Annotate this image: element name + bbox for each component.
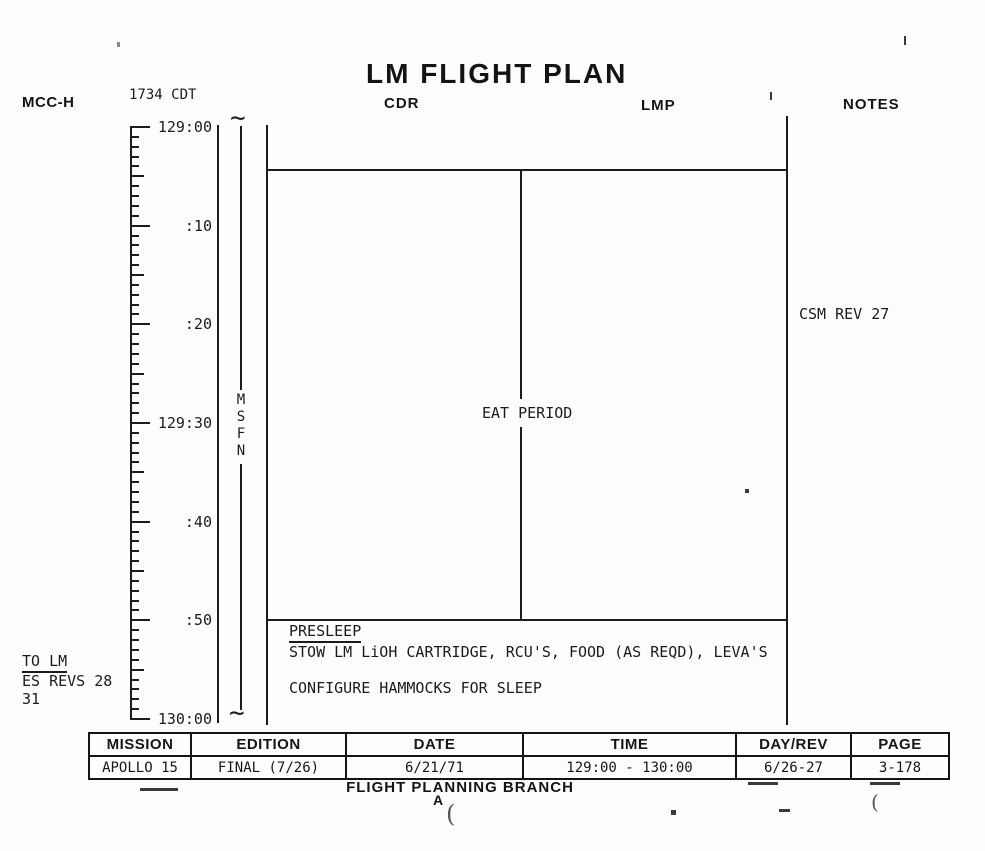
presleep-item-stow: STOW LM LiOH CARTRIDGE, RCU'S, FOOD (AS …: [289, 643, 768, 661]
ruler-tick: [130, 363, 139, 365]
column-header-notes: NOTES: [843, 96, 900, 113]
cdr-lmp-divider-upper: [520, 171, 522, 399]
table-header-mission: MISSION: [90, 734, 190, 757]
ruler-tick: [130, 294, 139, 296]
table-value-edition: FINAL (7/26): [192, 757, 345, 778]
ruler-tick: [130, 659, 139, 661]
ruler-tick: [130, 353, 139, 355]
table-col-time: TIME 129:00 - 130:00: [524, 734, 737, 778]
scan-artifact-tick: [904, 36, 906, 45]
ruler-tick: [130, 175, 144, 177]
ruler-tick-label: :50: [138, 611, 212, 629]
column-header-cdr: CDR: [384, 95, 420, 112]
ruler-tick: [130, 254, 139, 256]
ruler-tick-label: :10: [138, 217, 212, 235]
presleep-heading: PRESLEEP: [289, 622, 361, 643]
msfn-break-symbol-top: ~: [230, 103, 246, 133]
msfn-line-upper: [240, 126, 242, 390]
ruler-tick: [130, 195, 139, 197]
ruler-tick: [130, 669, 144, 671]
ruler-tick: [130, 244, 139, 246]
eat-period-top-rule: [266, 169, 788, 171]
scan-artifact-paren: (: [446, 800, 455, 828]
scan-artifact-dot: [745, 489, 749, 493]
ruler-tick: [130, 471, 144, 473]
margin-note-to-lm: TO LM: [22, 652, 67, 673]
scan-artifact-tick: [770, 92, 772, 100]
ruler-tick-label: 129:00: [138, 118, 212, 136]
ruler-tick: [130, 560, 139, 562]
ruler-tick: [130, 264, 139, 266]
ruler-tick-label: :20: [138, 315, 212, 333]
ruler-tick: [130, 383, 139, 385]
scan-artifact-dash: [870, 782, 900, 785]
ruler-tick: [130, 550, 139, 552]
eat-period-label: EAT PERIOD: [482, 404, 572, 422]
msfn-break-symbol-bottom: ~: [229, 698, 245, 728]
msfn-label: MSFN: [231, 392, 251, 460]
ruler-tick: [130, 452, 139, 454]
ruler-tick: [130, 333, 139, 335]
scan-artifact-dot: [117, 42, 120, 47]
page-title: LM FLIGHT PLAN: [366, 58, 627, 90]
table-header-date: DATE: [347, 734, 522, 757]
ruler-tick: [130, 304, 139, 306]
ruler-tick: [130, 185, 139, 187]
ruler-tick: [130, 698, 139, 700]
msfn-letter: N: [231, 443, 251, 460]
ruler-tick: [130, 156, 139, 158]
ruler-tick: [130, 373, 144, 375]
ruler-tick-label: 130:00: [138, 710, 212, 728]
timeline-right-border-line: [217, 125, 219, 723]
ruler-tick: [130, 274, 144, 276]
ruler-tick: [130, 461, 139, 463]
cdr-lmp-divider-lower: [520, 427, 522, 620]
table-header-time: TIME: [524, 734, 735, 757]
table-col-edition: EDITION FINAL (7/26): [192, 734, 347, 778]
msfn-letter: S: [231, 409, 251, 426]
table-col-mission: MISSION APOLLO 15: [90, 734, 192, 778]
plan-right-border-line: [786, 116, 788, 725]
scan-artifact-dash: [779, 809, 790, 812]
table-header-page: PAGE: [852, 734, 948, 757]
table-value-time: 129:00 - 130:00: [524, 757, 735, 778]
ruler-tick: [130, 481, 139, 483]
ruler-tick: [130, 600, 139, 602]
presleep-item-hammocks: CONFIGURE HAMMOCKS FOR SLEEP: [289, 679, 542, 697]
table-col-day-rev: DAY/REV 6/26-27: [737, 734, 852, 778]
ruler-tick: [130, 432, 139, 434]
scan-artifact-dash: [748, 782, 778, 785]
msfn-letter: F: [231, 426, 251, 443]
ruler-tick: [130, 442, 139, 444]
margin-note-es-revs-cont: 31: [22, 690, 40, 708]
table-col-date: DATE 6/21/71: [347, 734, 524, 778]
ruler-tick: [130, 343, 139, 345]
ruler-tick: [130, 639, 139, 641]
flight-plan-page: MCC-H 1734 CDT LM FLIGHT PLAN CDR LMP NO…: [0, 0, 985, 851]
ruler-tick: [130, 501, 139, 503]
ruler-tick: [130, 136, 139, 138]
ruler-tick: [130, 284, 139, 286]
table-value-page: 3-178: [852, 757, 948, 778]
table-value-mission: APOLLO 15: [90, 757, 190, 778]
scan-artifact-dash: [140, 788, 178, 791]
table-value-date: 6/21/71: [347, 757, 522, 778]
ruler-tick: [130, 679, 139, 681]
ruler-tick: [130, 165, 139, 167]
ruler-tick-label: :40: [138, 513, 212, 531]
ruler-tick: [130, 629, 139, 631]
ruler-tick: [130, 491, 139, 493]
ruler-tick: [130, 580, 139, 582]
msfn-letter: M: [231, 392, 251, 409]
ruler-tick: [130, 392, 139, 394]
ruler-tick: [130, 570, 144, 572]
ruler-tick: [130, 590, 139, 592]
ruler-tick: [130, 649, 139, 651]
ruler-tick: [130, 531, 139, 533]
scan-artifact-dot: [671, 810, 676, 815]
ruler-tick: [130, 402, 139, 404]
plan-left-border-line: [266, 125, 268, 725]
ruler-tick-label: 129:30: [138, 414, 212, 432]
csm-rev-note: CSM REV 27: [799, 305, 889, 323]
margin-note-es-revs: ES REVS 28: [22, 672, 112, 690]
msfn-line-lower: [240, 464, 242, 710]
table-value-day-rev: 6/26-27: [737, 757, 850, 778]
table-header-day-rev: DAY/REV: [737, 734, 850, 757]
table-header-edition: EDITION: [192, 734, 345, 757]
scan-artifact-paren: (: [871, 790, 879, 814]
presleep-top-rule: [266, 619, 788, 621]
ruler-tick: [130, 688, 139, 690]
stamp-artifact-a: A: [433, 792, 443, 808]
table-col-page: PAGE 3-178: [852, 734, 948, 778]
ruler-tick: [130, 205, 139, 207]
ruler-tick: [130, 540, 139, 542]
branch-label: FLIGHT PLANNING BRANCH: [330, 779, 590, 796]
footer-table: MISSION APOLLO 15 EDITION FINAL (7/26) D…: [88, 732, 950, 780]
cdt-time-label: 1734 CDT: [129, 87, 196, 103]
ruler-tick: [130, 146, 139, 148]
ruler-tick: [130, 235, 139, 237]
mcc-h-label: MCC-H: [22, 94, 75, 111]
column-header-lmp: LMP: [641, 97, 676, 114]
